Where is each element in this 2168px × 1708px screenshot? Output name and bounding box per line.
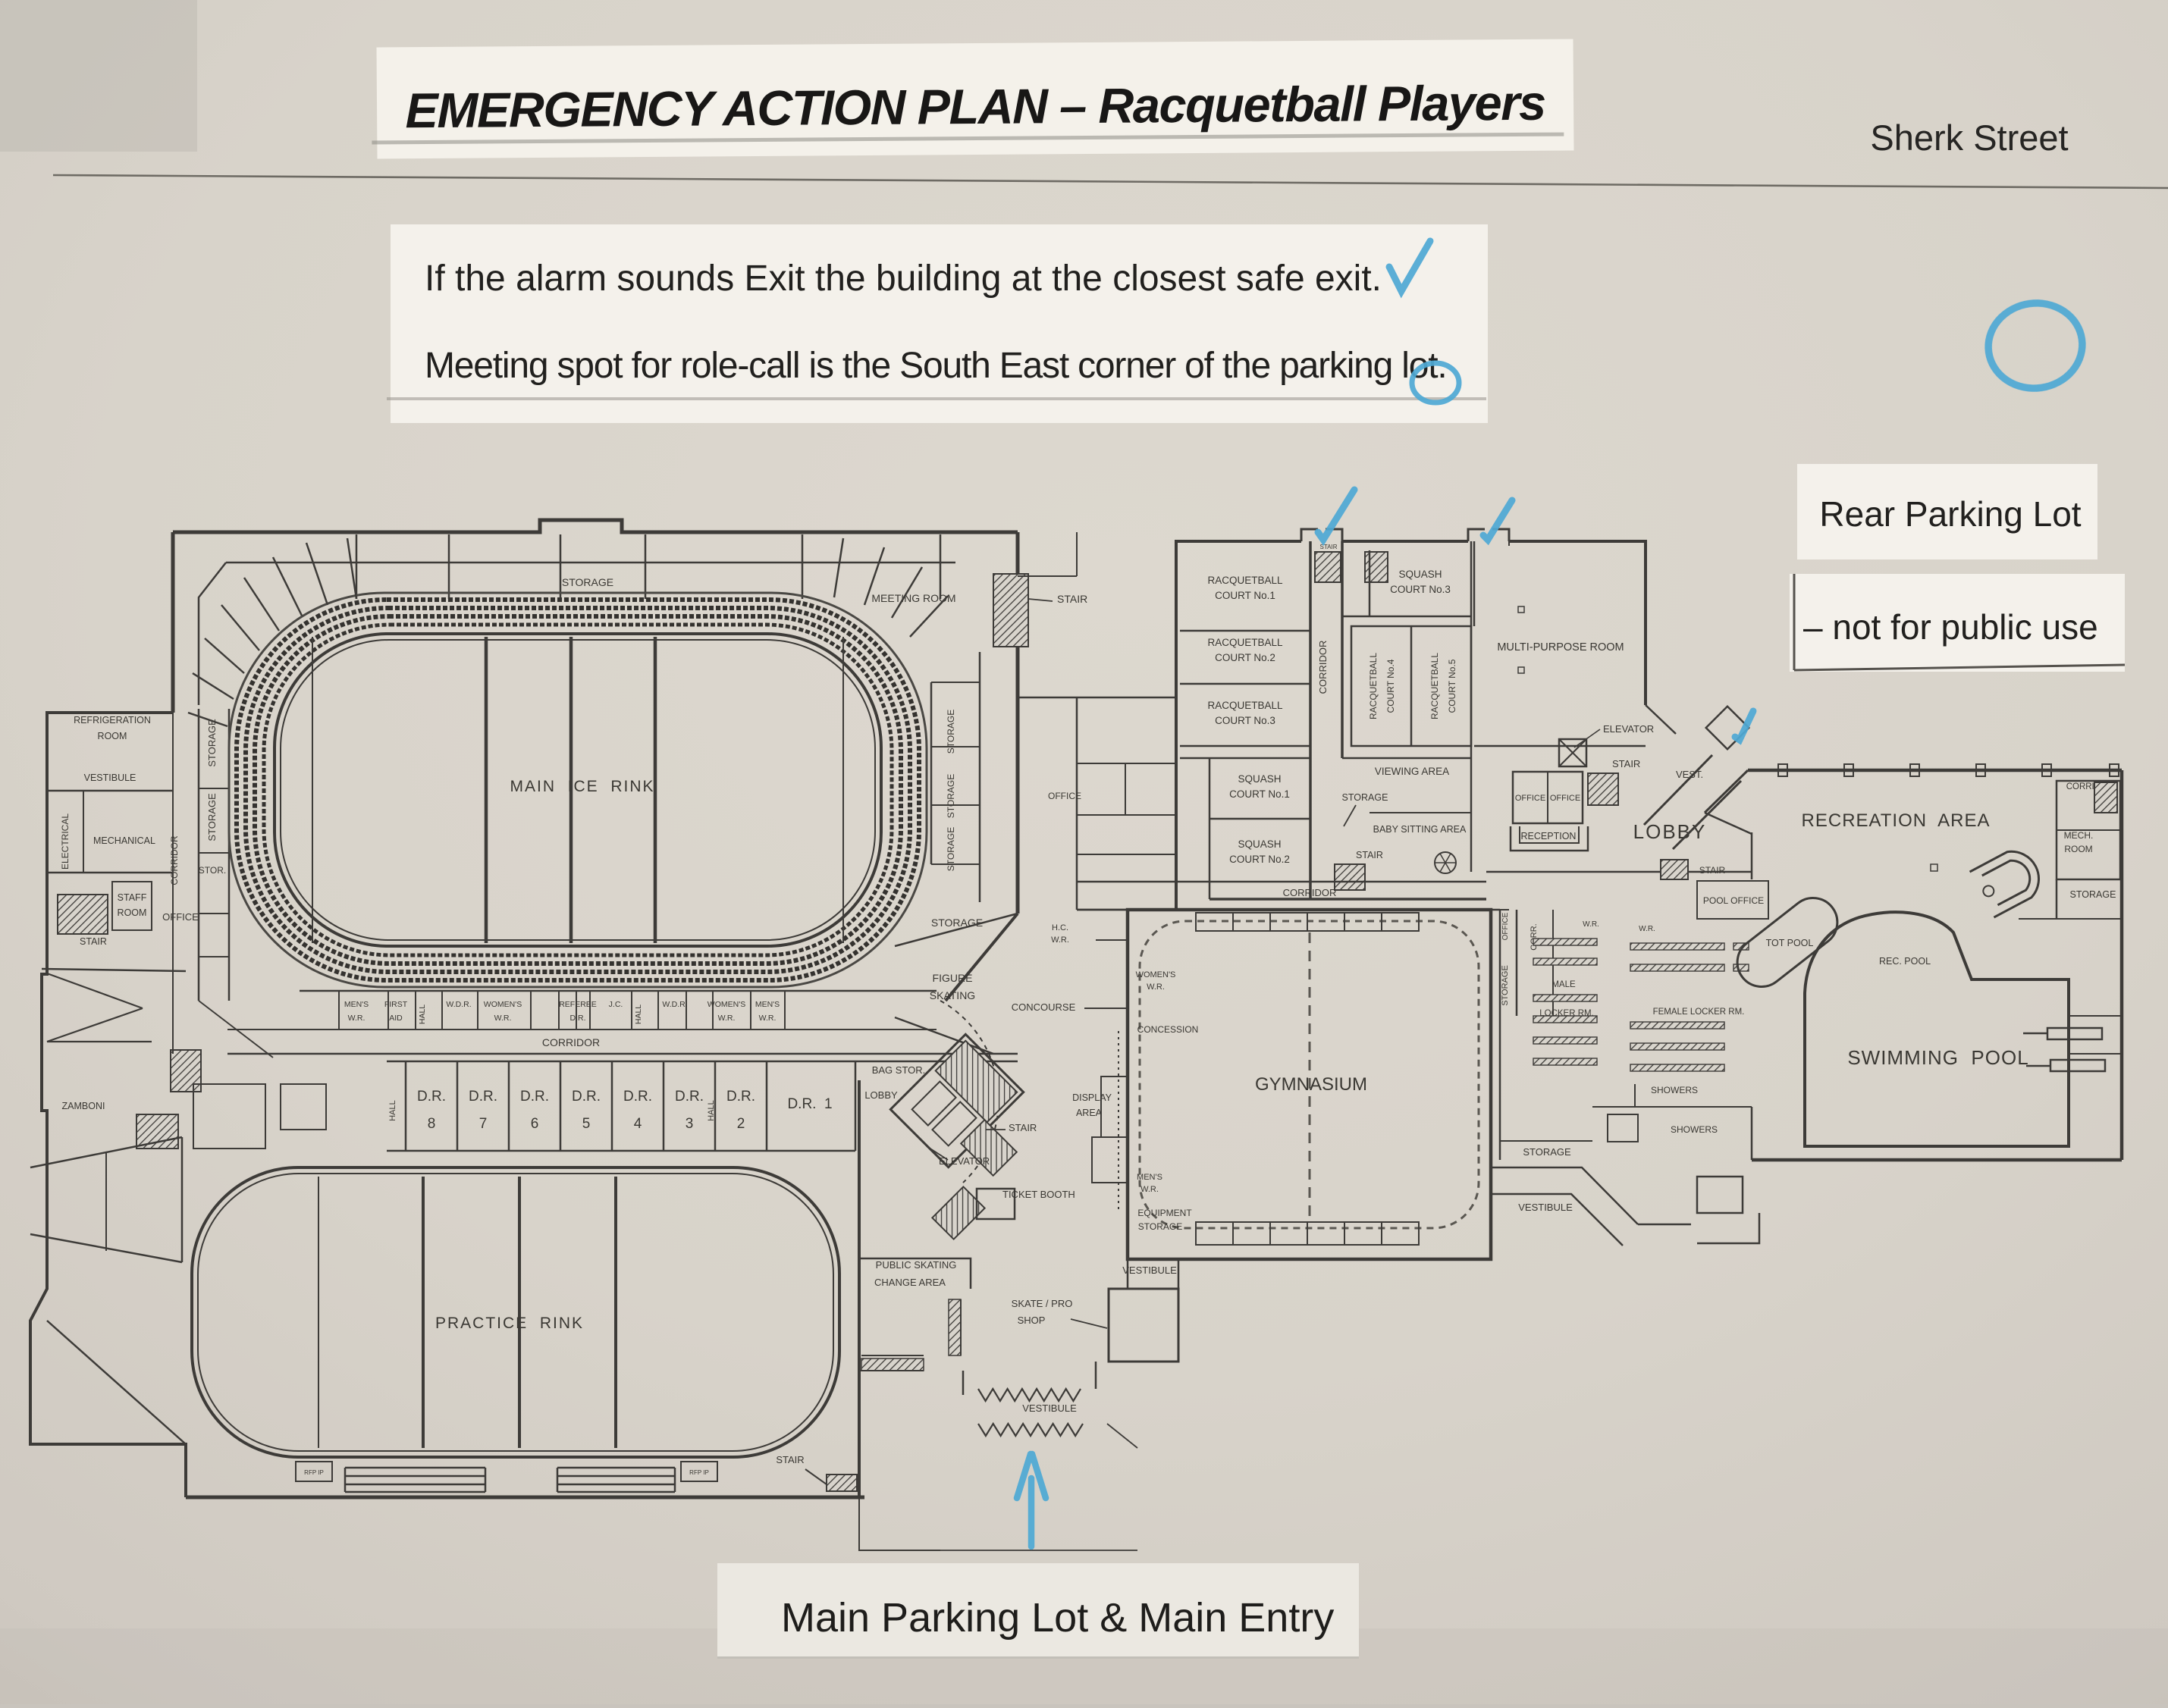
svg-text:D.R.: D.R. — [417, 1089, 446, 1105]
svg-text:CORRIDOR: CORRIDOR — [1317, 641, 1329, 694]
svg-text:MEETING ROOM: MEETING ROOM — [871, 592, 955, 604]
svg-text:STAIR: STAIR — [1612, 758, 1640, 769]
svg-text:MULTI-PURPOSE ROOM: MULTI-PURPOSE ROOM — [1497, 641, 1624, 653]
svg-text:Rear Parking Lot: Rear Parking Lot — [1819, 494, 2081, 534]
svg-text:RACQUETBALL: RACQUETBALL — [1429, 653, 1440, 719]
svg-text:SQUASH: SQUASH — [1398, 569, 1442, 580]
svg-text:STAIR: STAIR — [80, 936, 107, 947]
svg-text:STORAGE: STORAGE — [931, 917, 983, 929]
svg-text:Main Parking Lot & Main Entry: Main Parking Lot & Main Entry — [781, 1595, 1334, 1641]
svg-text:STORAGE: STORAGE — [946, 710, 956, 754]
svg-text:Meeting spot for role-call is: Meeting spot for role-call is the South … — [425, 346, 1447, 386]
svg-text:SHOP: SHOP — [1018, 1315, 1046, 1326]
svg-text:TOT POOL: TOT POOL — [1766, 938, 1814, 948]
svg-text:ELEVATOR: ELEVATOR — [939, 1155, 990, 1167]
svg-text:SKATE / PRO: SKATE / PRO — [1012, 1298, 1073, 1309]
svg-text:W.R.: W.R. — [1639, 925, 1655, 933]
svg-text:STORAGE: STORAGE — [946, 774, 956, 818]
svg-text:MEN'S: MEN'S — [1137, 1173, 1162, 1182]
svg-text:PRACTICE RINK: PRACTICE RINK — [435, 1315, 584, 1332]
svg-text:EQUIPMENT: EQUIPMENT — [1137, 1208, 1192, 1218]
svg-text:CORRIDOR: CORRIDOR — [1283, 887, 1337, 898]
svg-text:W.R.: W.R. — [1147, 982, 1165, 992]
svg-text:AID: AID — [389, 1014, 403, 1023]
svg-text:VIEWING AREA: VIEWING AREA — [1375, 766, 1449, 777]
svg-text:MEN'S: MEN'S — [755, 1000, 780, 1009]
svg-text:MECH.: MECH. — [2064, 830, 2094, 841]
svg-text:ROOM: ROOM — [2064, 844, 2092, 854]
svg-text:W.R.: W.R. — [1051, 935, 1069, 945]
svg-text:D.R.: D.R. — [570, 1014, 586, 1023]
svg-text:RACQUETBALL: RACQUETBALL — [1368, 653, 1379, 719]
svg-text:COURT No.3: COURT No.3 — [1215, 715, 1275, 726]
svg-text:D.R.: D.R. — [726, 1089, 755, 1105]
svg-text:HALL: HALL — [418, 1004, 427, 1024]
svg-text:H.C.: H.C. — [1052, 923, 1068, 932]
svg-text:VESTIBULE: VESTIBULE — [1022, 1402, 1077, 1414]
svg-text:MECHANICAL: MECHANICAL — [93, 835, 155, 846]
svg-text:MAIN ICE RINK: MAIN ICE RINK — [510, 778, 654, 795]
svg-text:OFFICE: OFFICE — [162, 911, 199, 923]
svg-text:– not for public use: – not for public use — [1803, 607, 2098, 647]
svg-text:STOR.: STOR. — [199, 865, 226, 876]
svg-text:STAIR: STAIR — [1356, 850, 1383, 860]
svg-text:AREA: AREA — [1076, 1108, 1103, 1118]
svg-text:CORR.: CORR. — [1530, 923, 1539, 950]
svg-text:FEMALE LOCKER RM.: FEMALE LOCKER RM. — [1653, 1008, 1745, 1017]
svg-text:RFP IP: RFP IP — [689, 1469, 709, 1476]
svg-text:WOMEN'S: WOMEN'S — [484, 1000, 522, 1009]
svg-text:COURT No.4: COURT No.4 — [1385, 659, 1396, 713]
svg-text:TICKET BOOTH: TICKET BOOTH — [1002, 1189, 1075, 1200]
svg-text:WOMEN'S: WOMEN'S — [708, 1000, 745, 1009]
svg-text:8: 8 — [428, 1116, 436, 1132]
svg-text:SQUASH: SQUASH — [1238, 838, 1281, 850]
svg-text:If the alarm sounds Exit the b: If the alarm sounds Exit the building at… — [425, 259, 1382, 299]
svg-text:STORAGE: STORAGE — [206, 719, 218, 767]
svg-text:W.R.: W.R. — [1583, 920, 1599, 929]
svg-text:RECEPTION: RECEPTION — [1521, 831, 1577, 841]
svg-text:W.R.: W.R. — [1140, 1185, 1159, 1194]
svg-text:ELECTRICAL: ELECTRICAL — [60, 813, 71, 870]
svg-text:STORAGE: STORAGE — [1501, 965, 1510, 1006]
svg-text:ROOM: ROOM — [98, 731, 127, 741]
svg-text:LOBBY: LOBBY — [864, 1089, 898, 1101]
svg-text:POOL OFFICE: POOL OFFICE — [1703, 895, 1764, 906]
svg-text:COURT No.1: COURT No.1 — [1229, 788, 1290, 800]
svg-text:EMERGENCY ACTION PLAN – Racque: EMERGENCY ACTION PLAN – Racquetball Play… — [405, 75, 1545, 138]
svg-text:CORRIDOR: CORRIDOR — [542, 1036, 600, 1048]
svg-text:STAIR: STAIR — [1009, 1122, 1037, 1133]
svg-text:VESTIBULE: VESTIBULE — [1122, 1265, 1177, 1276]
svg-text:W.R.: W.R. — [494, 1014, 512, 1023]
svg-text:VESTIBULE: VESTIBULE — [84, 773, 136, 783]
svg-text:D.R. 1: D.R. 1 — [787, 1096, 832, 1112]
svg-text:6: 6 — [531, 1116, 539, 1132]
svg-text:REFEREE: REFEREE — [559, 1000, 597, 1009]
svg-text:W.R.: W.R. — [718, 1014, 736, 1023]
svg-text:RACQUETBALL: RACQUETBALL — [1207, 637, 1283, 648]
svg-text:OFFICE: OFFICE — [1515, 794, 1545, 803]
svg-text:CHANGE AREA: CHANGE AREA — [874, 1277, 946, 1288]
svg-text:BABY SITTING AREA: BABY SITTING AREA — [1373, 824, 1467, 835]
svg-text:BAG STOR.: BAG STOR. — [872, 1064, 926, 1076]
svg-text:STORAGE: STORAGE — [2070, 889, 2116, 900]
svg-text:4: 4 — [634, 1116, 642, 1132]
svg-text:2: 2 — [737, 1116, 745, 1132]
svg-text:HALL: HALL — [634, 1004, 643, 1024]
svg-text:OFFICE: OFFICE — [1048, 791, 1081, 801]
svg-text:CONCESSION: CONCESSION — [1137, 1024, 1199, 1035]
svg-text:D.R.: D.R. — [623, 1089, 652, 1105]
svg-text:SWIMMING POOL: SWIMMING POOL — [1847, 1046, 2028, 1069]
svg-text:RACQUETBALL: RACQUETBALL — [1207, 575, 1283, 586]
svg-text:D.R.: D.R. — [520, 1089, 549, 1105]
svg-text:MEN'S: MEN'S — [344, 1000, 369, 1009]
svg-text:HALL: HALL — [388, 1100, 397, 1121]
svg-text:Sherk Street: Sherk Street — [1870, 118, 2068, 158]
svg-text:SHOWERS: SHOWERS — [1651, 1085, 1698, 1095]
svg-text:MALE: MALE — [1551, 980, 1576, 989]
svg-text:ELEVATOR: ELEVATOR — [1603, 723, 1654, 735]
svg-text:CONCOURSE: CONCOURSE — [1012, 1001, 1076, 1013]
svg-text:REC. POOL: REC. POOL — [1879, 956, 1931, 967]
svg-text:VESTIBULE: VESTIBULE — [1518, 1202, 1573, 1213]
svg-text:STORAGE: STORAGE — [1342, 792, 1388, 803]
svg-text:STORAGE: STORAGE — [562, 576, 613, 588]
svg-text:FIRST: FIRST — [384, 1000, 408, 1009]
svg-text:OFFICE: OFFICE — [1501, 912, 1510, 940]
svg-text:GYMNASIUM: GYMNASIUM — [1255, 1074, 1367, 1095]
svg-text:STAIR: STAIR — [1057, 593, 1087, 605]
svg-text:STAIR: STAIR — [776, 1454, 804, 1465]
svg-text:W.D.R.: W.D.R. — [662, 1000, 687, 1009]
svg-text:STORAGE: STORAGE — [1138, 1221, 1182, 1232]
svg-text:3: 3 — [686, 1116, 694, 1132]
svg-text:RFP IP: RFP IP — [304, 1469, 324, 1476]
svg-text:COURT No.5: COURT No.5 — [1447, 659, 1457, 713]
svg-text:REFRIGERATION: REFRIGERATION — [74, 715, 151, 726]
svg-text:CORRIDOR: CORRIDOR — [169, 835, 180, 885]
svg-text:STAFF: STAFF — [118, 892, 147, 903]
svg-text:STORAGE: STORAGE — [946, 827, 956, 871]
svg-text:STORAGE: STORAGE — [206, 793, 218, 841]
svg-text:D.R.: D.R. — [469, 1089, 497, 1105]
svg-text:D.R.: D.R. — [572, 1089, 601, 1105]
svg-text:DISPLAY: DISPLAY — [1072, 1092, 1112, 1103]
svg-text:COURT No.1: COURT No.1 — [1215, 590, 1275, 601]
svg-text:SHOWERS: SHOWERS — [1671, 1124, 1718, 1135]
svg-text:W.R.: W.R. — [759, 1014, 777, 1023]
svg-text:5: 5 — [582, 1116, 591, 1132]
svg-text:W.D.R.: W.D.R. — [446, 1000, 471, 1009]
svg-text:W.R.: W.R. — [348, 1014, 366, 1023]
svg-text:COURT No.2: COURT No.2 — [1229, 854, 1290, 865]
svg-text:VEST.: VEST. — [1676, 769, 1703, 780]
svg-text:PUBLIC SKATING: PUBLIC SKATING — [876, 1259, 957, 1271]
svg-text:OFFICE: OFFICE — [1550, 794, 1580, 803]
svg-text:SQUASH: SQUASH — [1238, 773, 1281, 785]
svg-text:RACQUETBALL: RACQUETBALL — [1207, 700, 1283, 711]
svg-text:ROOM: ROOM — [118, 907, 147, 918]
svg-text:FIGURE: FIGURE — [933, 972, 973, 984]
svg-text:D.R.: D.R. — [675, 1089, 704, 1105]
svg-text:STAIR: STAIR — [1699, 865, 1726, 876]
svg-text:COURT No.3: COURT No.3 — [1390, 584, 1451, 595]
svg-text:HALL: HALL — [707, 1100, 716, 1121]
svg-text:7: 7 — [479, 1116, 488, 1132]
svg-text:RECREATION AREA: RECREATION AREA — [1802, 810, 1991, 831]
svg-text:LOCKER RM.: LOCKER RM. — [1539, 1009, 1594, 1018]
svg-text:COURT No.2: COURT No.2 — [1215, 652, 1275, 663]
svg-text:WOMEN'S: WOMEN'S — [1136, 970, 1176, 979]
svg-text:J.C.: J.C. — [609, 1000, 623, 1009]
svg-text:STORAGE: STORAGE — [1523, 1146, 1571, 1158]
svg-text:ZAMBONI: ZAMBONI — [62, 1101, 105, 1111]
